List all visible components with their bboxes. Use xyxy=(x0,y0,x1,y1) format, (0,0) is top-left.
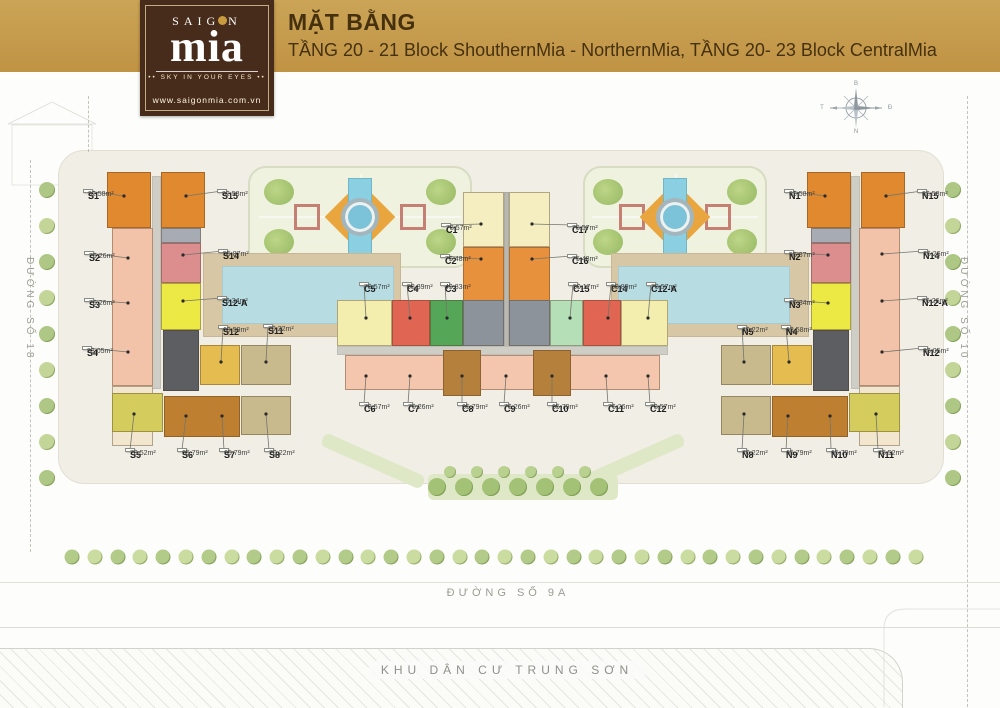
street-tree-icon xyxy=(315,550,330,565)
unit-area: 65,79m² xyxy=(552,404,578,412)
street-tree-icon xyxy=(498,466,510,478)
c17-tower xyxy=(509,192,550,247)
unit-area: 78,52m² xyxy=(878,450,904,458)
street-tree-icon xyxy=(444,466,456,478)
unit-label-S7: S765,79m² xyxy=(219,448,229,452)
unit-area: 78,57m² xyxy=(651,284,677,292)
district-label: KHU DÂN CƯ TRUNG SƠN xyxy=(369,661,645,679)
c-corridor xyxy=(337,346,668,355)
unit-label-N1: N182,58m² xyxy=(784,189,794,193)
logo-tagline-dots-right: •• xyxy=(257,74,266,81)
road-edge-line-lower xyxy=(0,627,1000,628)
unit-label-S12-A: S12-A76,34m² xyxy=(217,296,227,300)
saigon-mia-logo: SAIGN mia •• SKY IN YOUR EYES •• www.sai… xyxy=(140,0,274,116)
n8-block xyxy=(721,396,771,435)
street-tree-icon xyxy=(39,470,55,486)
street-tree-icon xyxy=(579,466,591,478)
street-tree-icon xyxy=(657,550,672,565)
logo-frame: SAIGN mia •• SKY IN YOUR EYES •• www.sai… xyxy=(145,5,269,111)
unit-label-N4: N463,58m² xyxy=(781,325,791,329)
street-tree-icon xyxy=(407,550,422,565)
c1-tower xyxy=(463,192,504,247)
unit-label-S4: S483,05m² xyxy=(82,346,92,350)
street-tree-icon xyxy=(384,550,399,565)
s15-tower xyxy=(161,172,205,228)
street-tree-icon xyxy=(179,550,194,565)
street-tree-icon xyxy=(429,550,444,565)
unit-area: 78,57m² xyxy=(572,225,598,233)
unit-label-N12: N1283,05m² xyxy=(918,346,928,350)
street-tree-icon xyxy=(908,550,923,565)
street-tree-icon xyxy=(945,470,961,486)
street-tree-icon xyxy=(475,550,490,565)
garden-planter-east xyxy=(400,204,426,230)
garden-tree-icon xyxy=(727,179,757,205)
street-tree-icon xyxy=(566,550,581,565)
unit-label-N2: N255,87m² xyxy=(784,250,794,254)
street-tree-icon xyxy=(270,550,285,565)
garden-fountain-icon xyxy=(341,198,379,236)
street-tree-icon xyxy=(771,550,786,565)
street-tree-icon xyxy=(509,478,527,496)
s12-block xyxy=(200,345,240,385)
unit-label-C2: C275,48m² xyxy=(440,254,450,258)
unit-label-C16: C1675,48m² xyxy=(567,254,577,258)
unit-area: 65,79m² xyxy=(182,450,208,458)
street-tree-icon xyxy=(794,550,809,565)
garden-planter-west xyxy=(294,204,320,230)
c-core-west xyxy=(463,300,504,346)
unit-label-C5: C578,57m² xyxy=(359,282,369,286)
unit-label-C7: C776,26m² xyxy=(403,402,413,406)
page-subtitle: TẦNG 20 - 21 Block ShouthernMia - Northe… xyxy=(288,40,937,61)
unit-area: 76,26m² xyxy=(89,300,115,308)
street-label-bottom: ĐƯỜNG SỐ 9A xyxy=(447,587,570,599)
garden-fountain-icon xyxy=(656,198,694,236)
street-tree-icon xyxy=(536,478,554,496)
unit-label-C8: C865,79m² xyxy=(457,402,467,406)
unit-label-C3: C349,83m² xyxy=(440,282,450,286)
page-title: MẶT BẰNG xyxy=(288,9,937,36)
street-tree-icon xyxy=(726,550,741,565)
street-tree-icon xyxy=(361,550,376,565)
s6-s7-block xyxy=(164,396,240,437)
garden-tree-icon xyxy=(727,229,757,255)
street-tree-icon xyxy=(589,550,604,565)
unit-label-N5: N570,22m² xyxy=(737,325,747,329)
s5-block xyxy=(112,393,163,432)
unit-label-S15: S1582,58m² xyxy=(217,189,227,193)
street-tree-icon xyxy=(945,398,961,414)
street-tree-icon xyxy=(452,550,467,565)
unit-label-N12-A: N12-A76,26m² xyxy=(917,296,927,300)
street-tree-icon xyxy=(156,550,171,565)
unit-label-S11: S1170,22m² xyxy=(263,324,273,328)
unit-area: 70,22m² xyxy=(742,327,768,335)
unit-label-C12: C1278,57m² xyxy=(645,402,655,406)
street-label-left: ĐƯỜNG SỐ 18 xyxy=(24,257,35,360)
unit-area: 58,89m² xyxy=(611,284,637,292)
s14-block xyxy=(161,243,201,283)
logo-tagline: •• SKY IN YOUR EYES •• xyxy=(146,74,268,81)
street-label-right: ĐƯỜNG SỐ 10 xyxy=(958,257,969,360)
unit-area: 83,05m² xyxy=(923,348,949,356)
c-south-band xyxy=(345,355,660,390)
c-mid-west-wing xyxy=(337,300,392,346)
unit-area: 82,58m² xyxy=(88,191,114,199)
c4-block xyxy=(392,300,430,346)
unit-area: 70,22m² xyxy=(742,450,768,458)
logo-divider xyxy=(156,71,258,72)
garden-tree-icon xyxy=(264,229,294,255)
unit-label-S1: S182,58m² xyxy=(83,189,93,193)
unit-label-S2: S276,26m² xyxy=(84,251,94,255)
unit-area: 78,57m² xyxy=(364,404,390,412)
street-tree-icon xyxy=(885,550,900,565)
street-tree-icon xyxy=(133,550,148,565)
unit-area: 76,26m² xyxy=(608,404,634,412)
n-core xyxy=(813,330,849,391)
street-tree-icon xyxy=(817,550,832,565)
logo-website: www.saigonmia.com.vn xyxy=(146,95,268,105)
unit-label-C10: C1065,79m² xyxy=(547,402,557,406)
unit-area: 65,79m² xyxy=(224,450,250,458)
unit-area: 76,26m² xyxy=(923,251,949,259)
n4-block xyxy=(772,345,812,385)
street-tree-icon xyxy=(39,254,55,270)
s2-s3-slab xyxy=(112,228,153,386)
unit-area: 63,59m² xyxy=(223,327,249,335)
n11-block xyxy=(849,393,900,432)
unit-area: 49,83m² xyxy=(445,284,471,292)
street-tree-icon xyxy=(945,218,961,234)
unit-area: 65,79m² xyxy=(786,450,812,458)
logo-tagline-dots-left: •• xyxy=(148,74,157,81)
unit-area: 76,26m² xyxy=(504,404,530,412)
unit-label-N15: N1582,58m² xyxy=(917,189,927,193)
street-tree-icon xyxy=(39,362,55,378)
sidewalk-line-upper xyxy=(0,582,1000,583)
n-gray-seg xyxy=(811,228,851,243)
s-core xyxy=(163,330,199,391)
c10-tower xyxy=(533,350,571,396)
unit-label-N3: N376,34m² xyxy=(784,298,794,302)
street-tree-icon xyxy=(703,550,718,565)
s11-block xyxy=(241,345,291,385)
n3-block xyxy=(811,283,851,330)
road-centerline-topleft-drive xyxy=(88,96,89,152)
unit-area: 76,34m² xyxy=(789,300,815,308)
unit-area: 70,22m² xyxy=(269,450,295,458)
unit-label-N14: N1476,26m² xyxy=(918,249,928,253)
c3-block xyxy=(430,300,463,346)
unit-area: 75,48m² xyxy=(572,256,598,264)
unit-label-C14: C1458,89m² xyxy=(606,282,616,286)
c14-block xyxy=(583,300,621,346)
unit-label-C11: C1176,26m² xyxy=(603,402,613,406)
unit-area: 58,89m² xyxy=(407,284,433,292)
street-tree-icon xyxy=(455,478,473,496)
unit-area: 55,87m² xyxy=(789,252,815,260)
unit-label-S14: S1455,87m² xyxy=(218,249,228,253)
unit-label-N8: N870,22m² xyxy=(737,448,747,452)
unit-area: 82,58m² xyxy=(789,191,815,199)
street-tree-icon xyxy=(428,478,446,496)
unit-area: 76,26m² xyxy=(922,298,948,306)
unit-area: 55,87m² xyxy=(223,251,249,259)
unit-area: 50,17m² xyxy=(573,284,599,292)
c-core-east xyxy=(509,300,550,346)
unit-area: 78,57m² xyxy=(650,404,676,412)
unit-area: 70,22m² xyxy=(268,326,294,334)
compass-west-label: T xyxy=(820,105,824,111)
street-tree-icon xyxy=(680,550,695,565)
street-tree-icon xyxy=(543,550,558,565)
unit-label-C1: C178,57m² xyxy=(441,223,451,227)
unit-label-N11: N1178,52m² xyxy=(873,448,883,452)
logo-tagline-text: SKY IN YOUR EYES xyxy=(161,74,254,81)
unit-area: 75,48m² xyxy=(445,256,471,264)
c8-tower xyxy=(443,350,481,396)
compass-east-label: Đ xyxy=(888,105,892,111)
unit-label-S3: S376,26m² xyxy=(84,298,94,302)
street-tree-icon xyxy=(87,550,102,565)
unit-area: 65,79m² xyxy=(462,404,488,412)
street-tree-icon xyxy=(39,182,55,198)
unit-label-C15: C1550,17m² xyxy=(568,282,578,286)
unit-label-N9: N965,79m² xyxy=(781,448,791,452)
garden-tree-icon xyxy=(264,179,294,205)
s12a-block xyxy=(161,283,201,330)
unit-area: 76,26m² xyxy=(408,404,434,412)
n5-block xyxy=(721,345,771,385)
unit-label-C12-A: C12-A78,57m² xyxy=(646,282,656,286)
s1-tower xyxy=(107,172,151,228)
n14-n12a-slab xyxy=(859,228,900,386)
unit-area: 63,58m² xyxy=(786,327,812,335)
c15-block xyxy=(550,300,583,346)
street-tree-icon xyxy=(612,550,627,565)
unit-label-C17: C1778,57m² xyxy=(567,223,577,227)
street-tree-icon xyxy=(482,478,500,496)
street-tree-icon xyxy=(498,550,513,565)
unit-area: 78,52m² xyxy=(130,450,156,458)
garden-tree-icon xyxy=(426,179,456,205)
unit-area: 65,79m² xyxy=(831,450,857,458)
s8-block xyxy=(241,396,291,435)
street-tree-icon xyxy=(39,290,55,306)
unit-area: 78,57m² xyxy=(364,284,390,292)
street-tree-icon xyxy=(590,478,608,496)
street-tree-icon xyxy=(945,362,961,378)
n15-tower xyxy=(861,172,905,228)
site-plan: B Đ N T ĐƯỜNG SỐ 18 ĐƯỜNG SỐ 10 ĐƯỜNG SỐ… xyxy=(0,72,1000,707)
unit-area: 78,57m² xyxy=(446,225,472,233)
s-gray-seg xyxy=(161,228,201,243)
unit-label-C6: C678,57m² xyxy=(359,402,369,406)
page: MẶT BẰNG TẦNG 20 - 21 Block ShouthernMia… xyxy=(0,0,1000,707)
unit-area: 76,34m² xyxy=(222,298,248,306)
street-tree-icon xyxy=(110,550,125,565)
unit-label-S5: S578,52m² xyxy=(125,448,135,452)
street-tree-icon xyxy=(840,550,855,565)
n1-tower xyxy=(807,172,851,228)
header-titles: MẶT BẰNG TẦNG 20 - 21 Block ShouthernMia… xyxy=(288,9,937,61)
unit-area: 83,05m² xyxy=(87,348,113,356)
street-tree-icon xyxy=(749,550,764,565)
street-tree-icon xyxy=(39,398,55,414)
unit-area: 76,26m² xyxy=(89,253,115,261)
street-tree-icon xyxy=(224,550,239,565)
street-tree-icon xyxy=(338,550,353,565)
unit-area: 82,58m² xyxy=(222,191,248,199)
street-tree-icon xyxy=(39,218,55,234)
s-spine xyxy=(152,176,161,389)
street-tree-icon xyxy=(65,550,80,565)
street-tree-icon xyxy=(945,434,961,450)
street-tree-icon xyxy=(471,466,483,478)
c-mid-east-wing xyxy=(621,300,668,346)
street-tree-icon xyxy=(863,550,878,565)
unit-label-S6: S665,79m² xyxy=(177,448,187,452)
garden-tree-icon xyxy=(593,229,623,255)
unit-label-N10: N1065,79m² xyxy=(826,448,836,452)
n9-n10-block xyxy=(772,396,848,437)
unit-label-S8: S870,22m² xyxy=(264,448,274,452)
road-centerline-right xyxy=(967,96,968,707)
unit-label-C9: C976,26m² xyxy=(499,402,509,406)
street-tree-icon xyxy=(552,466,564,478)
street-tree-icon xyxy=(39,326,55,342)
unit-label-S12: S1263,59m² xyxy=(218,325,228,329)
street-tree-icon xyxy=(293,550,308,565)
unit-label-C4: C458,89m² xyxy=(402,282,412,286)
street-tree-icon xyxy=(521,550,536,565)
street-tree-icon xyxy=(635,550,650,565)
street-tree-icon xyxy=(247,550,262,565)
logo-brand-main: mia xyxy=(146,29,268,65)
n2-block xyxy=(811,243,851,283)
street-tree-icon xyxy=(201,550,216,565)
street-tree-icon xyxy=(39,434,55,450)
street-tree-icon xyxy=(525,466,537,478)
compass-icon xyxy=(828,80,884,136)
street-tree-icon xyxy=(563,478,581,496)
garden-tree-icon xyxy=(593,179,623,205)
unit-area: 82,58m² xyxy=(922,191,948,199)
